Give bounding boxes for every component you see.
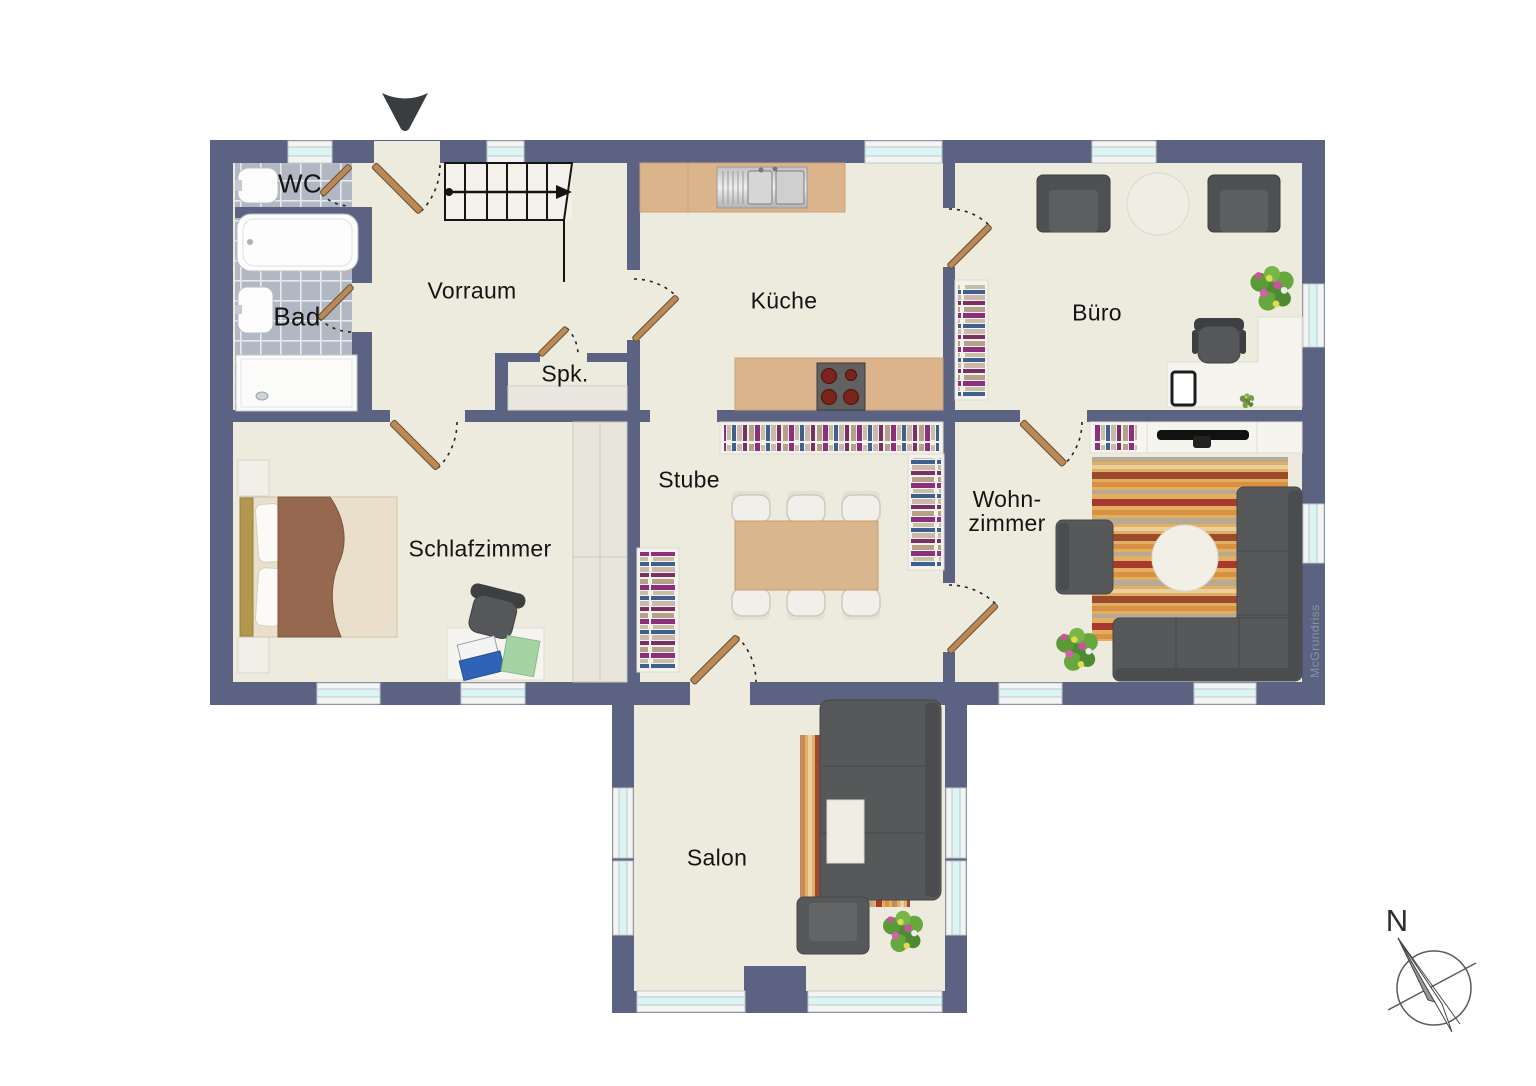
window bbox=[865, 141, 942, 163]
nightstand bbox=[238, 637, 269, 673]
window bbox=[288, 141, 332, 163]
room-label-wc: WC bbox=[278, 169, 322, 200]
floorplan-canvas: WC Bad Vorraum Spk. Küche Büro Schlafzim… bbox=[0, 0, 1536, 1086]
dining-chair bbox=[787, 491, 825, 523]
window bbox=[1303, 284, 1324, 347]
floorplan-graphic bbox=[0, 0, 1536, 1086]
window bbox=[317, 683, 380, 704]
kitchen-counter-top bbox=[640, 163, 845, 212]
kitchen-counter-bottom bbox=[735, 358, 943, 410]
room-label-bad: Bad bbox=[273, 302, 320, 333]
wc-sink-faucet bbox=[235, 180, 242, 191]
window bbox=[946, 861, 966, 935]
livingroom-furniture bbox=[1056, 422, 1302, 681]
salon-door-gap-floor bbox=[690, 682, 750, 706]
wc-sink bbox=[238, 168, 278, 203]
window bbox=[1194, 683, 1256, 704]
shower bbox=[236, 355, 357, 411]
pantry-shelf bbox=[508, 386, 627, 410]
window bbox=[946, 788, 966, 858]
stove bbox=[817, 363, 865, 410]
coffee-table bbox=[1152, 525, 1218, 591]
window bbox=[613, 861, 633, 935]
bathtub bbox=[237, 214, 358, 271]
dining-table bbox=[735, 521, 878, 590]
entrance-gap-floor bbox=[374, 141, 440, 164]
window bbox=[461, 683, 525, 704]
side-table bbox=[827, 800, 864, 863]
room-label-salon: Salon bbox=[687, 845, 747, 872]
armchair bbox=[1056, 520, 1113, 594]
nightstand bbox=[238, 460, 269, 496]
bad-sink bbox=[235, 287, 273, 333]
window bbox=[637, 991, 745, 1012]
room-label-stube: Stube bbox=[658, 467, 720, 494]
room-label-wohnzimmer: Wohn- zimmer bbox=[968, 487, 1045, 535]
books bbox=[911, 458, 941, 566]
window bbox=[613, 788, 633, 858]
dining-chair bbox=[787, 588, 825, 620]
sideboard bbox=[1090, 422, 1302, 453]
books bbox=[640, 552, 676, 668]
office-armchair bbox=[1208, 175, 1280, 232]
room-label-buero: Büro bbox=[1072, 300, 1122, 327]
room-label-wohnzimmer-line1: Wohn- bbox=[968, 487, 1045, 511]
room-label-vorraum: Vorraum bbox=[427, 278, 516, 305]
dining-chair bbox=[842, 588, 880, 620]
desk-mat bbox=[501, 635, 540, 676]
entrance-arrow-icon bbox=[382, 93, 428, 131]
room-label-spk: Spk. bbox=[541, 361, 588, 388]
office-desk-chair bbox=[1192, 318, 1246, 363]
armchair bbox=[797, 897, 869, 954]
window bbox=[1092, 141, 1156, 163]
compass-north-label: N bbox=[1386, 903, 1408, 939]
window bbox=[487, 141, 524, 163]
dining-chair bbox=[732, 491, 770, 523]
room-label-schlafzimmer: Schlafzimmer bbox=[409, 536, 552, 563]
kitchen-sink bbox=[717, 167, 807, 209]
tablet bbox=[1172, 372, 1195, 405]
books bbox=[1095, 425, 1137, 450]
watermark: McGrundriss bbox=[1308, 604, 1322, 678]
office-books bbox=[958, 284, 985, 396]
room-label-wohnzimmer-line2: zimmer bbox=[968, 511, 1045, 535]
office-round-table bbox=[1127, 173, 1189, 235]
double-bed bbox=[240, 497, 397, 637]
dining-chair bbox=[732, 588, 770, 620]
books bbox=[724, 425, 939, 451]
window bbox=[808, 991, 942, 1012]
wc-fixtures bbox=[235, 168, 278, 203]
dining-chair bbox=[842, 491, 880, 523]
compass-rose-icon bbox=[1388, 938, 1476, 1032]
window bbox=[1303, 504, 1324, 563]
office-armchair bbox=[1037, 175, 1110, 232]
room-label-kueche: Küche bbox=[751, 288, 818, 315]
window bbox=[999, 683, 1062, 704]
blanket bbox=[278, 497, 344, 637]
